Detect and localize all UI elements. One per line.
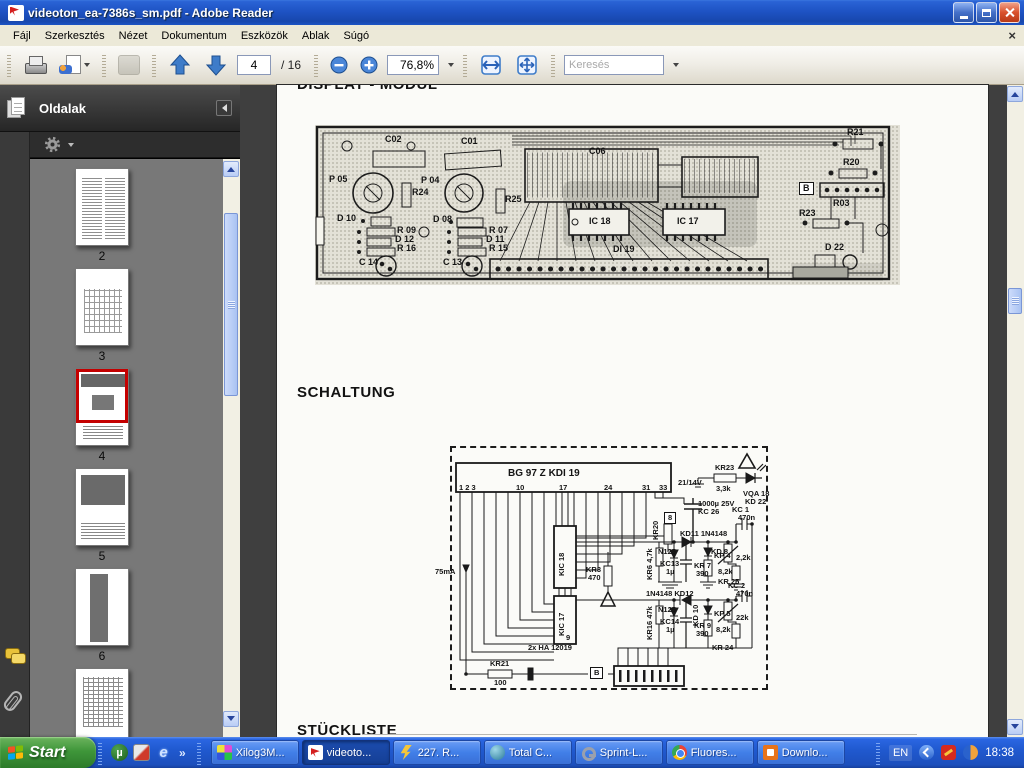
schematic-label-34: 390	[696, 630, 709, 638]
thumbnail-list: 23456	[30, 159, 222, 737]
menu-item-1[interactable]: Szerkesztés	[38, 28, 112, 44]
schematic-label-35: KP 5	[714, 610, 731, 618]
adobe-reader-app-icon	[8, 5, 24, 21]
taskbar-button-label: 227. R...	[418, 747, 460, 759]
zoom-in-button[interactable]	[357, 50, 381, 80]
pcb-label-1: C01	[461, 137, 478, 146]
fit-width-button[interactable]	[476, 50, 506, 80]
pcb-label-2: C06	[589, 147, 606, 156]
taskbar-button-label: Downlo...	[782, 747, 828, 759]
taskbar-button-label: Fluores...	[691, 747, 737, 759]
flash-icon	[399, 745, 414, 760]
toolbar-grip	[551, 53, 555, 77]
toolbar-grip	[7, 53, 11, 77]
collaborate-icon	[118, 55, 140, 75]
next-page-button[interactable]	[201, 50, 231, 80]
messenger-tray-icon[interactable]	[963, 745, 978, 760]
thumbnail-page-number: 6	[75, 649, 129, 663]
schematic-label-53: KD 10	[692, 605, 700, 626]
pcb-label-5: R24	[412, 188, 429, 197]
pcb-label-17: IC 18	[589, 217, 611, 226]
pcb-label-14: R 15	[489, 244, 508, 253]
fit-page-button[interactable]	[512, 50, 542, 80]
schematic-label-19: KP 4	[714, 552, 731, 560]
taskbar-button-label: videoto...	[327, 747, 372, 759]
main-area: Oldalak 23456 DISPLAY - MODUL	[0, 85, 1024, 737]
schematic-label-6: 33	[659, 484, 667, 492]
sidebar-scrollbar[interactable]	[223, 159, 240, 737]
navigation-panel-strip	[0, 85, 30, 737]
app-quicklaunch-icon[interactable]	[133, 744, 150, 761]
taskbar: Start µe» Xilog3M...videoto...227. R...T…	[0, 737, 1024, 768]
pcb-label-8: D 08	[433, 215, 452, 224]
pcb-label-15: C 14	[359, 258, 378, 267]
schematic-label-30: N125	[658, 606, 676, 614]
menu-item-0[interactable]: Fájl	[6, 28, 38, 44]
email-icon	[59, 55, 81, 75]
schematic-label-44: 75mA	[435, 568, 455, 576]
pcb-label-7: D 10	[337, 214, 356, 223]
thumbnail-image[interactable]	[75, 268, 129, 346]
document-page[interactable]: DISPLAY - MODUL	[277, 85, 988, 737]
schematic-label-29: 1N4148 KD12	[646, 590, 694, 598]
schematic-label-5: 31	[642, 484, 650, 492]
thumbnail-page-number: 2	[75, 249, 129, 263]
thumbnail-image[interactable]	[75, 668, 129, 737]
scrollbar-thumb[interactable]	[224, 213, 238, 396]
window-title: videoton_ea-7386s_sm.pdf - Adobe Reader	[28, 6, 273, 20]
restore-button[interactable]	[976, 2, 997, 23]
pcb-label-21: R20	[843, 158, 860, 167]
schematic-label-46: B	[590, 667, 603, 679]
ie-quicklaunch-icon[interactable]: e	[155, 744, 172, 761]
start-label: Start	[29, 744, 65, 762]
page-thumbnail-2[interactable]: 2	[75, 168, 129, 263]
ruled-line	[362, 734, 917, 735]
thumbnail-page-number: 3	[75, 349, 129, 363]
arrow-down-icon	[1011, 724, 1019, 733]
chrome-icon	[672, 745, 687, 760]
menu-items: FájlSzerkesztésNézetDokumentumEszközökAb…	[6, 30, 376, 42]
schematic-label-17: N125	[658, 548, 676, 556]
heading-display-modul: DISPLAY - MODUL	[297, 85, 438, 93]
heading-schaltung: SCHALTUNG	[297, 384, 395, 401]
tray-ridge	[876, 741, 880, 765]
toolbar-grip	[314, 53, 318, 77]
menu-item-3[interactable]: Dokumentum	[154, 28, 233, 44]
pcb-label-20: R21	[847, 128, 864, 137]
taskbar-button-label: Total C...	[509, 747, 552, 759]
title-bar: videoton_ea-7386s_sm.pdf - Adobe Reader	[0, 0, 1024, 25]
schematic-label-36: 22k	[736, 614, 749, 622]
schematic-label-0: BG 97 Z KDI 19	[508, 469, 580, 479]
schematic-label-9: 3,3k	[716, 485, 731, 493]
pages-options-row	[30, 132, 240, 158]
schematic-label-37: 8,2k	[716, 626, 731, 634]
schematic-label-3: 17	[559, 484, 567, 492]
scroll-up-button[interactable]	[1007, 86, 1023, 102]
attachments-paperclip-icon[interactable]	[1, 689, 24, 714]
schematic-label-41: 2x HA 12019	[528, 644, 572, 652]
previous-page-button[interactable]	[165, 50, 195, 80]
thumbnail-image[interactable]	[75, 468, 129, 546]
pcb-label-23: R23	[799, 209, 816, 218]
minimize-icon	[960, 16, 968, 19]
minus-icon	[330, 56, 348, 74]
schematic-label-28: 470	[588, 574, 601, 582]
schematic-label-42: KR21	[490, 660, 509, 668]
taskbar-button-flash[interactable]: 227. R...	[393, 740, 481, 765]
taskbar-button-pdf[interactable]: videoto...	[302, 740, 390, 765]
windows-flag-icon	[8, 745, 24, 761]
restore-icon	[982, 9, 991, 17]
sidebar-title: Oldalak	[39, 101, 86, 116]
schematic-label-7: 21/14V	[678, 479, 702, 487]
schematic-label-43: 100	[494, 679, 507, 687]
schematic-label-20: 2,2k	[736, 554, 751, 562]
arrow-up-icon	[1011, 88, 1019, 97]
schematic-label-38: KR 24	[712, 644, 733, 652]
printer-icon	[23, 55, 47, 75]
fit-width-icon	[479, 53, 503, 77]
pcb-label-22: R03	[833, 199, 850, 208]
page-thumbnail-partial-5[interactable]	[75, 668, 129, 737]
pcb-label-25: B	[799, 182, 814, 195]
toolbar: / 16 76,8%	[0, 46, 1024, 85]
key-icon	[581, 745, 596, 760]
schematic-label-15: 470n	[738, 514, 755, 522]
page-thumbnails-panel: 23456	[30, 158, 240, 737]
collaborate-button-disabled	[115, 50, 143, 80]
hide-tray-icons-button[interactable]	[919, 745, 934, 760]
schematic-label-32: 1µ	[666, 626, 675, 634]
totalcmd-icon	[490, 745, 505, 760]
pages-panel-icon[interactable]	[7, 97, 25, 119]
document-region: DISPLAY - MODUL	[240, 85, 1024, 737]
schematic-label-47: 8	[664, 512, 676, 524]
menu-bar: FájlSzerkesztésNézetDokumentumEszközökAb…	[0, 25, 1024, 46]
pcb-label-16: C 13	[443, 258, 462, 267]
taskbar-button-chrome[interactable]: Fluores...	[666, 740, 754, 765]
schematic-label-8: KR23	[715, 464, 734, 472]
schematic-label-1: 1 2 3	[459, 484, 476, 492]
schematic-label-16: KD11 1N4148	[680, 530, 727, 538]
close-button[interactable]	[999, 2, 1020, 23]
pdf-icon	[308, 745, 323, 760]
clock[interactable]: 18:38	[985, 747, 1014, 759]
page-thumbnail-6[interactable]: 6	[75, 568, 129, 663]
schematic-label-48: KIC 18	[558, 553, 566, 576]
zoom-level-value[interactable]: 76,8%	[387, 55, 439, 75]
email-button[interactable]	[56, 50, 93, 80]
schematic-label-22: 390	[696, 570, 709, 578]
schematic-label-51: KR6 4,7k	[646, 548, 654, 580]
menu-item-2[interactable]: Nézet	[112, 28, 155, 44]
schematic-label-13: KC 26	[698, 508, 719, 516]
pcb-label-18: IC 17	[677, 217, 699, 226]
taskbar-button-key[interactable]: Sprint-L...	[575, 740, 663, 765]
comments-panel-icon[interactable]	[5, 648, 25, 664]
toolbar-grip	[463, 53, 467, 77]
arrow-down-icon	[227, 716, 235, 725]
schematic-figure: BG 97 Z KDI 191 2 3101724313321/14VKR233…	[450, 446, 768, 690]
search-dropdown-chevron-icon[interactable]	[673, 63, 679, 70]
thumbnail-image[interactable]	[75, 568, 129, 646]
taskbar-ridge	[98, 741, 102, 765]
plus-icon	[360, 56, 378, 74]
zoom-dropdown-chevron-icon[interactable]	[448, 63, 454, 70]
taskbar-button-totalcmd[interactable]: Total C...	[484, 740, 572, 765]
schematic-label-25: 8,2k	[718, 568, 733, 576]
scroll-down-button[interactable]	[1007, 719, 1023, 735]
schematic-label-52: KR16 47k	[646, 606, 654, 640]
page-thumbnail-3[interactable]: 3	[75, 268, 129, 363]
system-tray: EN 18:38	[874, 737, 1024, 768]
taskbar-button-label: Sprint-L...	[600, 747, 648, 759]
page-number-input[interactable]	[237, 55, 271, 75]
schematic-label-50: KR20	[652, 521, 660, 540]
pcb-label-13: R 16	[397, 244, 416, 253]
language-indicator[interactable]: EN	[889, 745, 912, 761]
document-close-button[interactable]: ×	[1008, 28, 1016, 43]
utorrent-quicklaunch-icon[interactable]: µ	[111, 744, 128, 761]
thumbnail-image[interactable]	[75, 368, 129, 446]
taskbar-button-label: Xilog3M...	[236, 747, 285, 759]
page-count-label: / 16	[281, 58, 301, 72]
document-scrollbar[interactable]	[1007, 85, 1024, 737]
toolbar-grip	[102, 53, 106, 77]
print-button[interactable]	[20, 50, 50, 80]
schematic-label-40: 470n	[736, 590, 753, 598]
schematic-label-24: 1µ	[666, 568, 675, 576]
taskbar-button-download[interactable]: Downlo...	[757, 740, 845, 765]
sidebar-collapse-button[interactable]	[216, 100, 232, 116]
schematic-label-45: 9	[566, 634, 570, 642]
arrow-up-icon	[168, 53, 192, 77]
menu-item-6[interactable]: Súgó	[336, 28, 376, 44]
security-tray-icon[interactable]	[941, 745, 956, 760]
schematic-label-49: KIC 17	[558, 613, 566, 636]
scroll-up-button[interactable]	[223, 161, 239, 177]
arrow-up-icon	[227, 163, 235, 172]
menu-item-4[interactable]: Eszközök	[234, 28, 295, 44]
schematic-label-2: 10	[516, 484, 524, 492]
task-buttons: Xilog3M...videoto...227. R...Total C...S…	[211, 740, 845, 765]
search-input[interactable]	[564, 55, 664, 75]
thumbnail-image[interactable]	[75, 168, 129, 246]
arrow-down-icon	[204, 53, 228, 77]
potentiometer-p05	[353, 173, 393, 213]
page-thumbnail-4[interactable]: 4	[75, 368, 129, 463]
quicklaunch-overflow-chevron-icon[interactable]: »	[177, 746, 188, 760]
scrollbar-thumb[interactable]	[1008, 288, 1022, 314]
pcb-label-6: R25	[505, 195, 522, 204]
page-thumbnail-5[interactable]: 5	[75, 468, 129, 563]
pcb-label-19: DI 19	[613, 245, 635, 254]
sidebar-header: Oldalak	[0, 85, 240, 132]
gear-icon[interactable]	[44, 136, 61, 153]
taskbar-button-xilog[interactable]: Xilog3M...	[211, 740, 299, 765]
pcb-label-24: D 22	[825, 243, 844, 252]
toolbar-grip	[152, 53, 156, 77]
minimize-button[interactable]	[953, 2, 974, 23]
scroll-down-button[interactable]	[223, 711, 239, 727]
quick-launch-bar: µe»	[104, 744, 195, 761]
pcb-label-4: P 04	[421, 176, 439, 185]
pcb-label-0: C02	[385, 135, 402, 144]
menu-item-5[interactable]: Ablak	[295, 28, 337, 44]
options-chevron-down-icon[interactable]	[68, 143, 74, 150]
download-icon	[763, 745, 778, 760]
pcb-layout-figure: C02C01C06P 05P 04R24R25D 10D 08R 09R 07D…	[315, 125, 900, 285]
potentiometer-p04	[445, 174, 483, 212]
thumbnail-page-number: 5	[75, 549, 129, 563]
xilog-icon	[217, 745, 232, 760]
pcb-label-3: P 05	[329, 175, 347, 184]
fit-page-icon	[515, 53, 539, 77]
chevron-down-icon	[84, 63, 90, 70]
start-button[interactable]: Start	[0, 737, 96, 768]
selection-highlight	[76, 369, 128, 423]
pcb-drawing	[315, 125, 900, 285]
zoom-out-button[interactable]	[327, 50, 351, 80]
thumbnail-page-number: 4	[75, 449, 129, 463]
taskbar-ridge	[197, 741, 201, 765]
close-icon	[1004, 7, 1015, 18]
schematic-label-4: 24	[604, 484, 612, 492]
